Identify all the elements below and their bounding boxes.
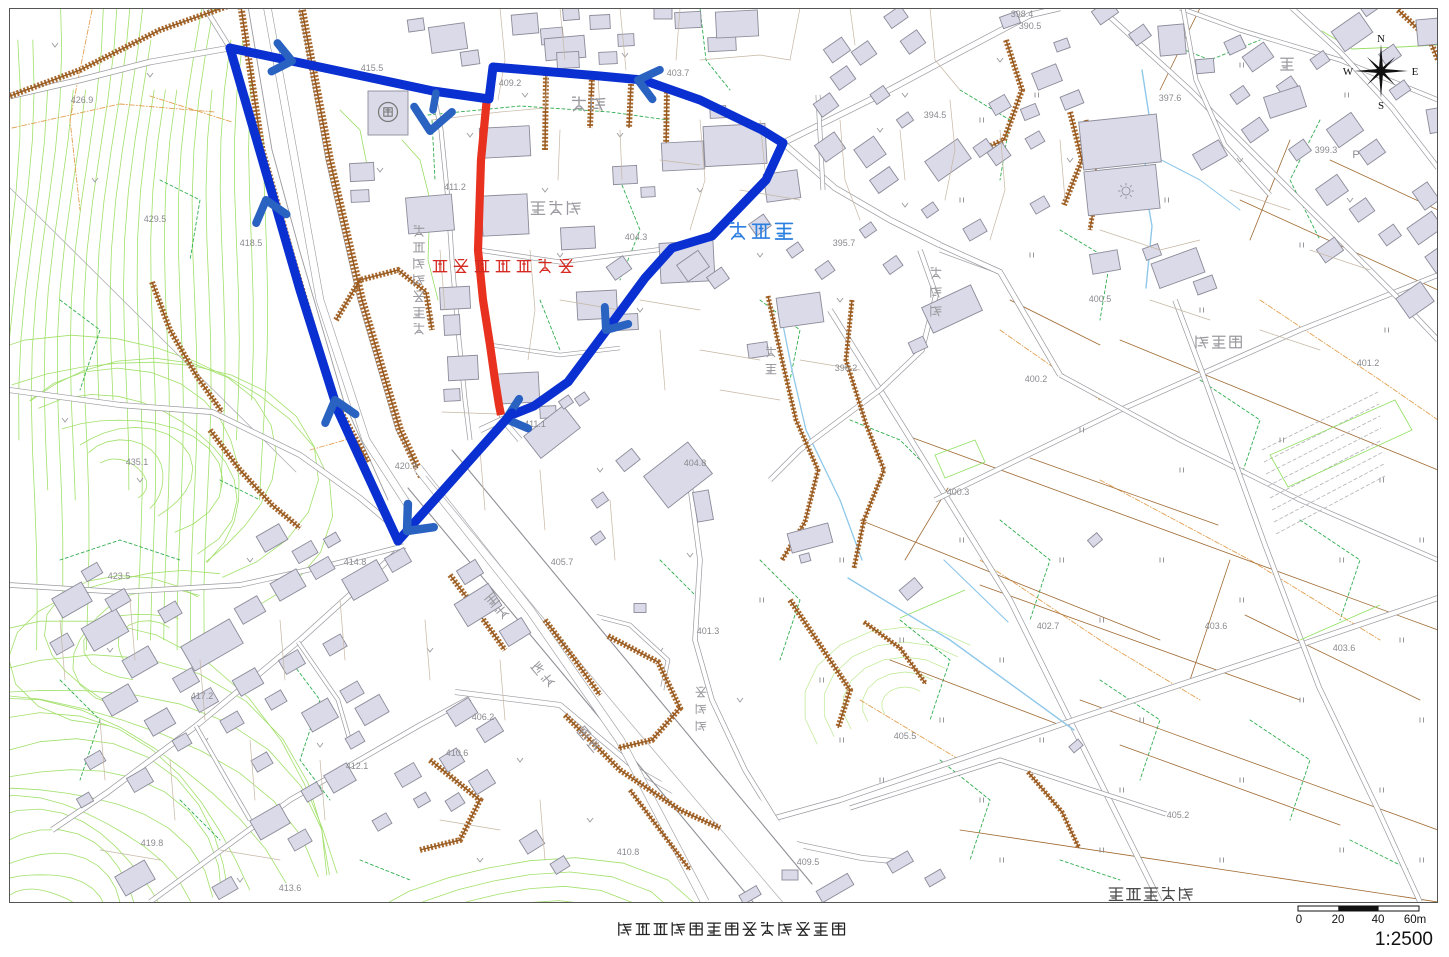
svg-text:404.3: 404.3: [625, 232, 648, 242]
svg-text:403.7: 403.7: [667, 68, 690, 78]
svg-text:N: N: [1377, 33, 1385, 45]
svg-text:409.2: 409.2: [499, 78, 522, 88]
svg-text:60m: 60m: [1404, 914, 1426, 926]
svg-text:400.5: 400.5: [1089, 294, 1112, 304]
svg-text:411.2: 411.2: [444, 182, 466, 192]
svg-text:420.9: 420.9: [395, 461, 418, 471]
svg-text:400.2: 400.2: [1025, 374, 1048, 384]
svg-text:405.7: 405.7: [551, 557, 574, 567]
svg-text:409.5: 409.5: [797, 857, 820, 867]
svg-text:398.4: 398.4: [1011, 9, 1034, 19]
svg-text:419.8: 419.8: [141, 838, 164, 848]
svg-text:S: S: [1378, 100, 1384, 112]
svg-text:418.5: 418.5: [240, 238, 263, 248]
svg-text:404.8: 404.8: [684, 458, 707, 468]
svg-text:429.5: 429.5: [144, 214, 167, 224]
svg-text:435.1: 435.1: [126, 457, 149, 467]
svg-text:E: E: [1412, 66, 1419, 78]
svg-text:396.2: 396.2: [835, 363, 858, 373]
svg-text:417.2: 417.2: [191, 691, 214, 701]
svg-text:40: 40: [1372, 914, 1385, 926]
svg-text:401.2: 401.2: [1357, 358, 1380, 368]
svg-text:413.6: 413.6: [279, 883, 302, 893]
svg-text:W: W: [1343, 66, 1354, 78]
svg-text:390.5: 390.5: [1019, 21, 1042, 31]
svg-text:0: 0: [1296, 914, 1302, 926]
svg-text:403.6: 403.6: [1333, 643, 1356, 653]
svg-text:403.6: 403.6: [1205, 621, 1228, 631]
svg-text:412.1: 412.1: [346, 761, 369, 771]
svg-text:1:2500: 1:2500: [1375, 929, 1433, 950]
svg-text:423.5: 423.5: [108, 571, 131, 581]
svg-text:401.3: 401.3: [697, 626, 720, 636]
svg-text:P: P: [1352, 149, 1359, 161]
svg-text:394.5: 394.5: [924, 110, 947, 120]
svg-text:397.6: 397.6: [1159, 93, 1182, 103]
svg-text:406.2: 406.2: [472, 712, 495, 722]
svg-text:395.7: 395.7: [833, 238, 856, 248]
svg-text:410.6: 410.6: [446, 748, 469, 758]
svg-text:402.7: 402.7: [1037, 621, 1060, 631]
svg-text:400.3: 400.3: [947, 487, 970, 497]
svg-text:410.8: 410.8: [617, 847, 640, 857]
svg-text:20: 20: [1332, 914, 1345, 926]
svg-text:405.2: 405.2: [1167, 810, 1190, 820]
svg-text:414.8: 414.8: [344, 557, 367, 567]
svg-text:399.3: 399.3: [1315, 145, 1338, 155]
svg-text:405.5: 405.5: [894, 731, 917, 741]
svg-text:415.5: 415.5: [361, 63, 384, 73]
svg-text:426.9: 426.9: [71, 95, 94, 105]
